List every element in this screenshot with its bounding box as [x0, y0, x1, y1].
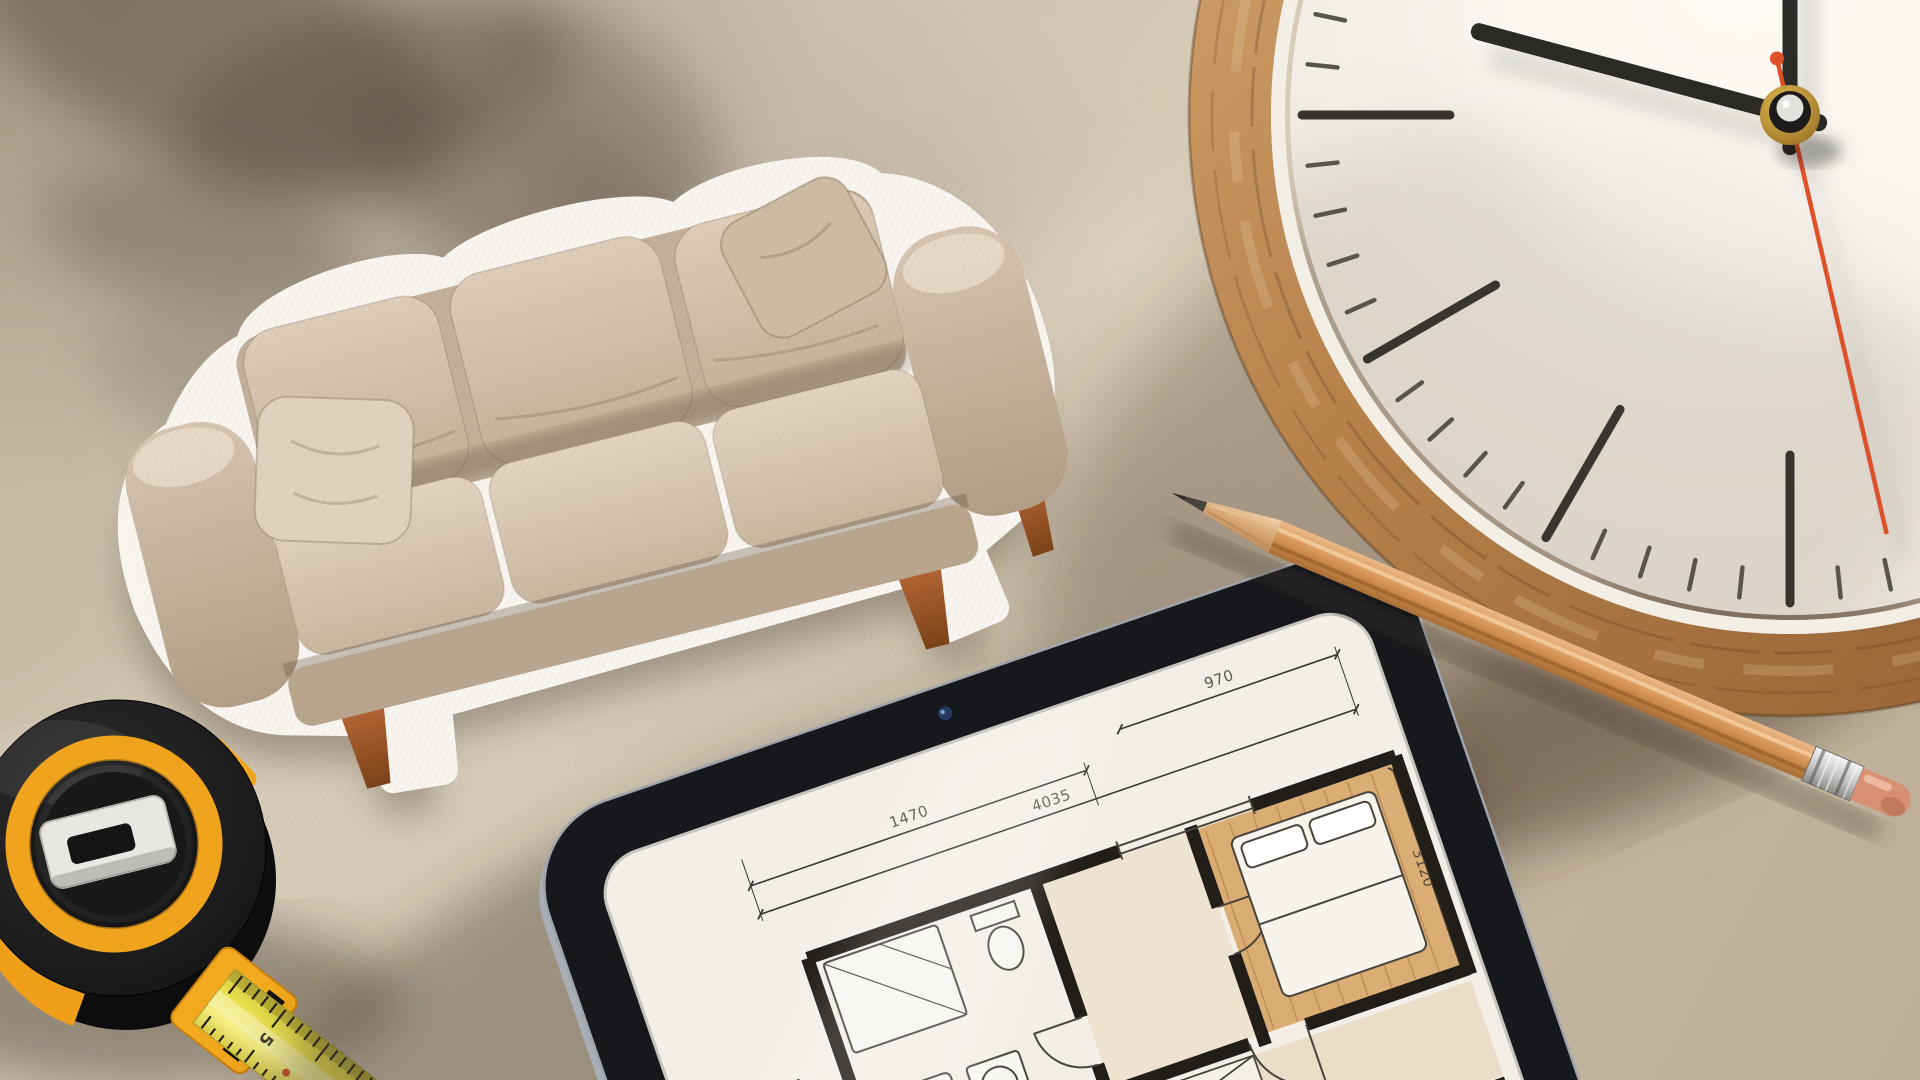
flat-lay-photo: 5 10 15 — [0, 0, 1920, 1080]
hub-cap — [1777, 95, 1804, 122]
scene-graphics: 5 10 15 — [0, 0, 1920, 1080]
hub-glint — [1782, 100, 1790, 108]
